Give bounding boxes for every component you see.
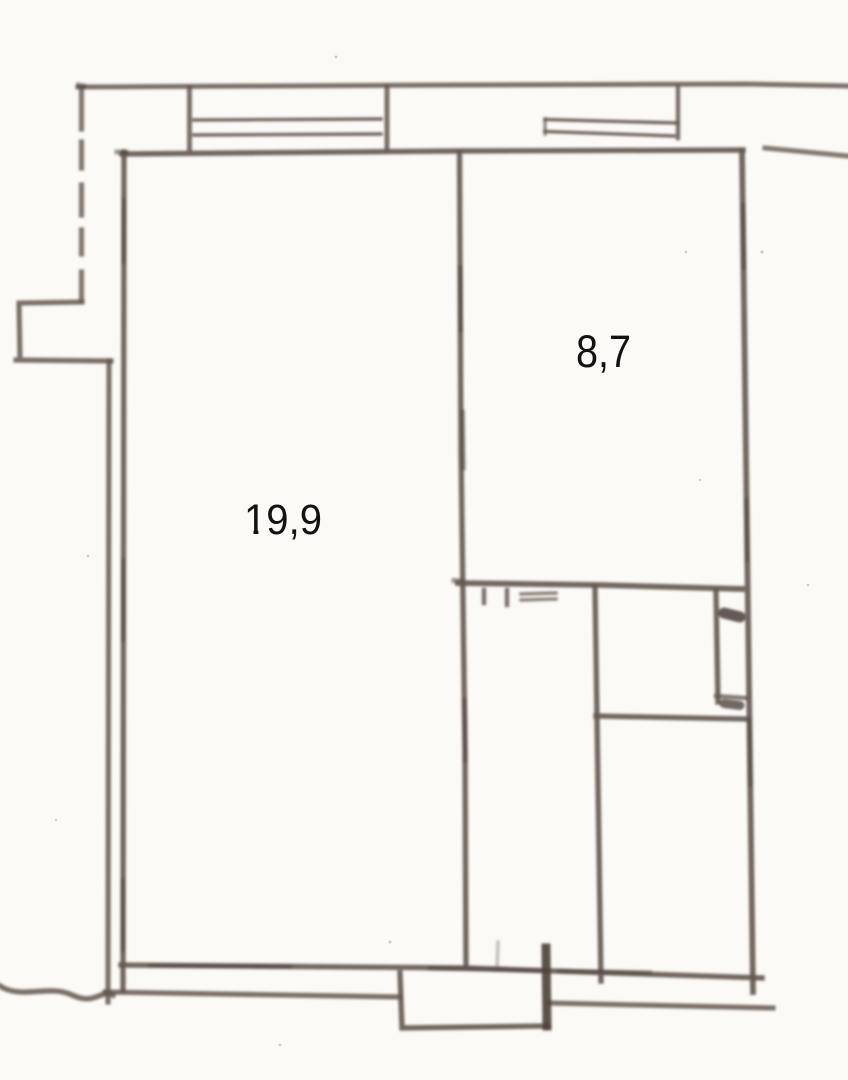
svg-text:19,9: 19,9 — [244, 496, 322, 544]
svg-text:8,7: 8,7 — [576, 326, 631, 377]
